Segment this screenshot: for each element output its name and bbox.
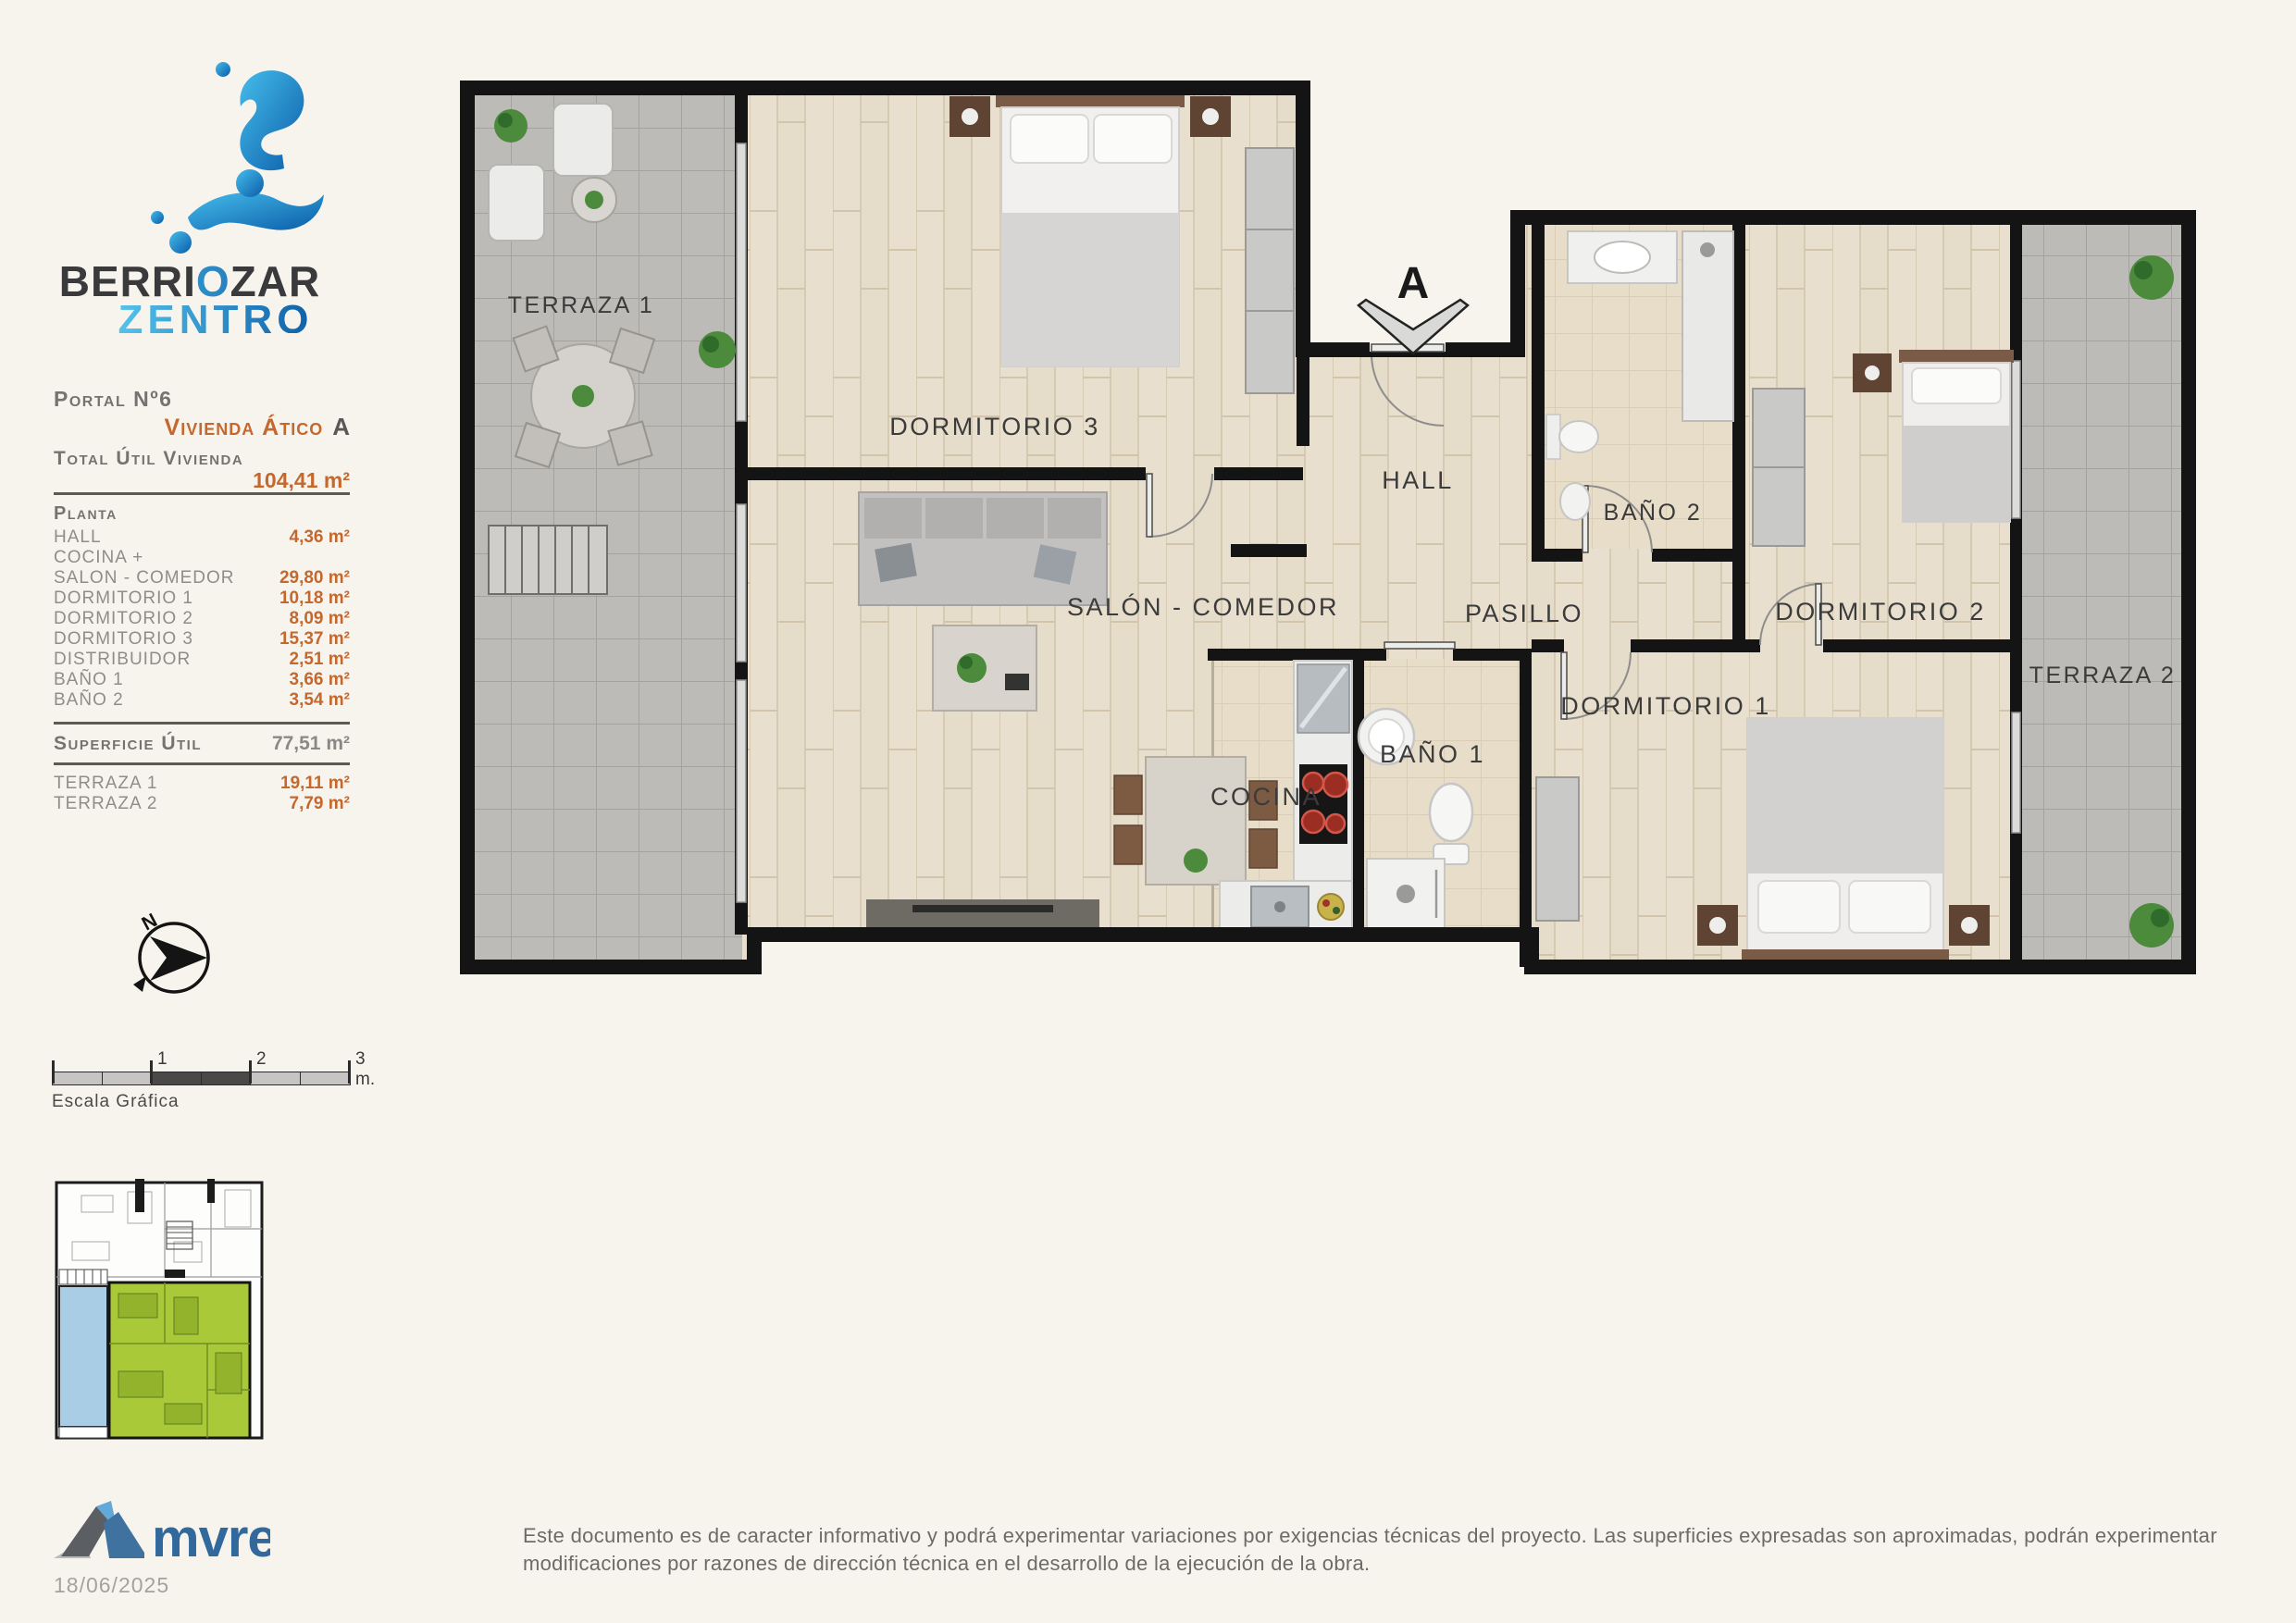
room-label-dormitorio3: DORMITORIO 3 <box>889 413 1100 440</box>
table-row: BAÑO 13,66 m² <box>54 670 350 690</box>
scale-segment <box>102 1072 152 1085</box>
mountain-icon <box>54 1501 144 1558</box>
logo-splash-icon: BERRIOZAR ZENTRO <box>51 28 329 333</box>
table-row: SALON - COMEDOR29,80 m² <box>54 568 350 588</box>
vivienda-label: Vivienda Ático <box>165 415 324 441</box>
divider <box>54 492 350 495</box>
scale-caption: Escala Gráfica <box>52 1092 180 1112</box>
total-util-label: Total Útil Vivienda <box>54 448 243 470</box>
table-row: TERRAZA 119,11 m² <box>54 774 350 794</box>
vivienda-letter: A <box>332 413 350 441</box>
document-date: 18/06/2025 <box>54 1573 169 1598</box>
room-label-bano2: BAÑO 2 <box>1604 499 1703 526</box>
key-plan-stairs-top <box>59 1270 107 1284</box>
key-plan-stairs-bottom <box>59 1427 107 1438</box>
room-label-dormitorio2: DORMITORIO 2 <box>1775 598 1986 626</box>
table-row: DORMITORIO 28,09 m² <box>54 609 350 629</box>
superficie-label: Superficie Útil <box>54 733 202 755</box>
table-row: TERRAZA 27,79 m² <box>54 794 350 814</box>
developer-logo: mvre <box>48 1499 270 1573</box>
divider <box>54 762 350 765</box>
scale-label-3: 3 m. <box>355 1049 375 1090</box>
north-label: N <box>139 910 161 935</box>
floorplan-sheet: { "branding": { "line1a": "BERRI", "line… <box>0 0 2296 1623</box>
scale-tick <box>52 1060 55 1084</box>
north-arrow-icon <box>150 936 207 981</box>
water-splash <box>151 62 324 254</box>
table-row: DISTRIBUIDOR2,51 m² <box>54 650 350 670</box>
scale-tick <box>150 1060 153 1084</box>
room-label-dormitorio1: DORMITORIO 1 <box>1560 692 1771 720</box>
scale-segment <box>300 1072 351 1085</box>
room-label-salon: SALÓN - COMEDOR <box>1067 592 1339 621</box>
table-row: COCINA + <box>54 548 350 568</box>
legal-disclaimer: Este documento es de caracter informativ… <box>523 1522 2240 1577</box>
divider <box>54 722 350 725</box>
section-marker-letter: A <box>1397 259 1430 308</box>
portal-label: Portal Nº6 <box>54 387 172 412</box>
superficie-value: 77,51 m² <box>272 733 350 755</box>
scale-label-1: 1 <box>157 1049 168 1070</box>
table-row: BAÑO 23,54 m² <box>54 690 350 711</box>
table-row: DORMITORIO 315,37 m² <box>54 629 350 650</box>
scale-segment <box>201 1072 251 1085</box>
floor-plan: A TERRAZA 1 DORMITORIO 3 HALL BAÑO 2 DOR… <box>460 20 2205 988</box>
planta-label: Planta <box>54 503 118 525</box>
table-row: DORMITORIO 110,18 m² <box>54 588 350 609</box>
terrace-2-floor <box>2020 220 2186 964</box>
room-label-cocina: COCINA <box>1210 783 1322 811</box>
room-label-pasillo: PASILLO <box>1465 600 1583 627</box>
compass-tail <box>133 976 146 992</box>
scale-label-2: 2 <box>256 1049 267 1070</box>
key-plan <box>26 1168 271 1445</box>
brand-logo: BERRIOZAR ZENTRO <box>51 28 329 333</box>
scale-segment <box>151 1072 202 1085</box>
scale-tick <box>348 1060 351 1084</box>
table-row: HALL4,36 m² <box>54 527 350 548</box>
scale-segment <box>52 1072 103 1085</box>
room-label-terraza2: TERRAZA 2 <box>2029 663 2177 688</box>
total-util-value: 104,41 m² <box>253 468 350 493</box>
developer-logo-text: mvre <box>152 1508 270 1568</box>
brand-line2: ZENTRO <box>118 297 314 333</box>
room-label-terraza1: TERRAZA 1 <box>508 292 655 318</box>
graphic-scale: 1 2 3 m. Escala Gráfica <box>52 1051 357 1116</box>
room-label-bano1: BAÑO 1 <box>1380 739 1485 768</box>
scale-segment <box>250 1072 301 1085</box>
key-plan-terrace-highlight <box>59 1286 107 1427</box>
scale-tick <box>249 1060 252 1084</box>
north-compass: N <box>118 909 230 1006</box>
room-label-hall: HALL <box>1382 466 1454 494</box>
